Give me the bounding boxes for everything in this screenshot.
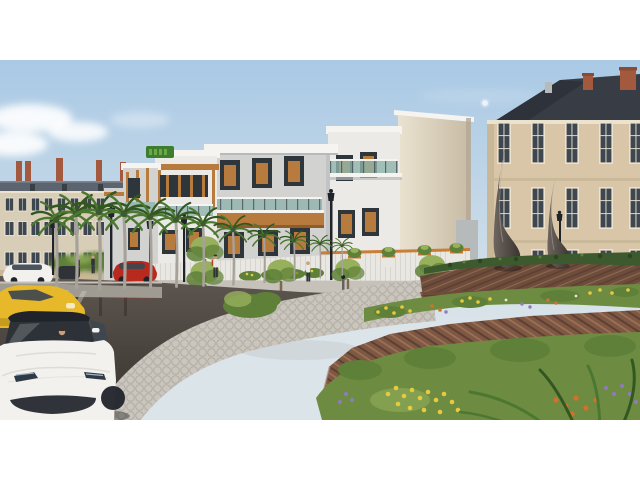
scene (0, 60, 640, 420)
letterboxed-render (0, 0, 640, 480)
side-mirror (92, 328, 100, 333)
glass-balcony-mid (214, 197, 322, 210)
render-frame (0, 60, 640, 420)
rooftop-sign (146, 146, 174, 158)
moon (480, 98, 490, 108)
